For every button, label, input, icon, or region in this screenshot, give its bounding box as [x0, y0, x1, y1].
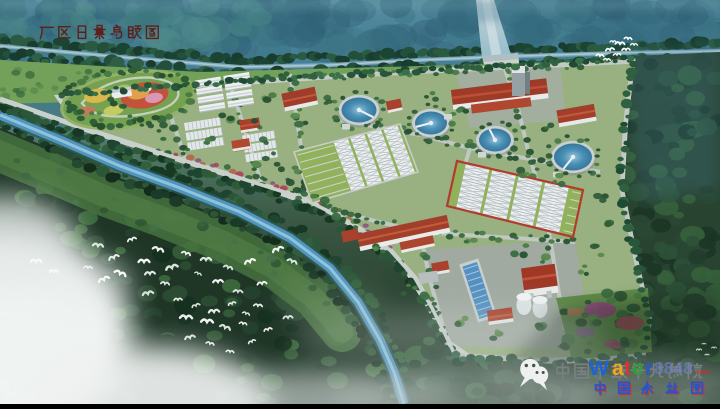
- svg-text:t: t: [624, 357, 631, 380]
- svg-text:W: W: [589, 357, 609, 380]
- svg-text:r: r: [645, 357, 653, 380]
- svg-text:e: e: [632, 357, 644, 380]
- svg-text:8848: 8848: [654, 358, 693, 378]
- svg-text:.com: .com: [694, 369, 710, 376]
- svg-text:a: a: [612, 357, 624, 380]
